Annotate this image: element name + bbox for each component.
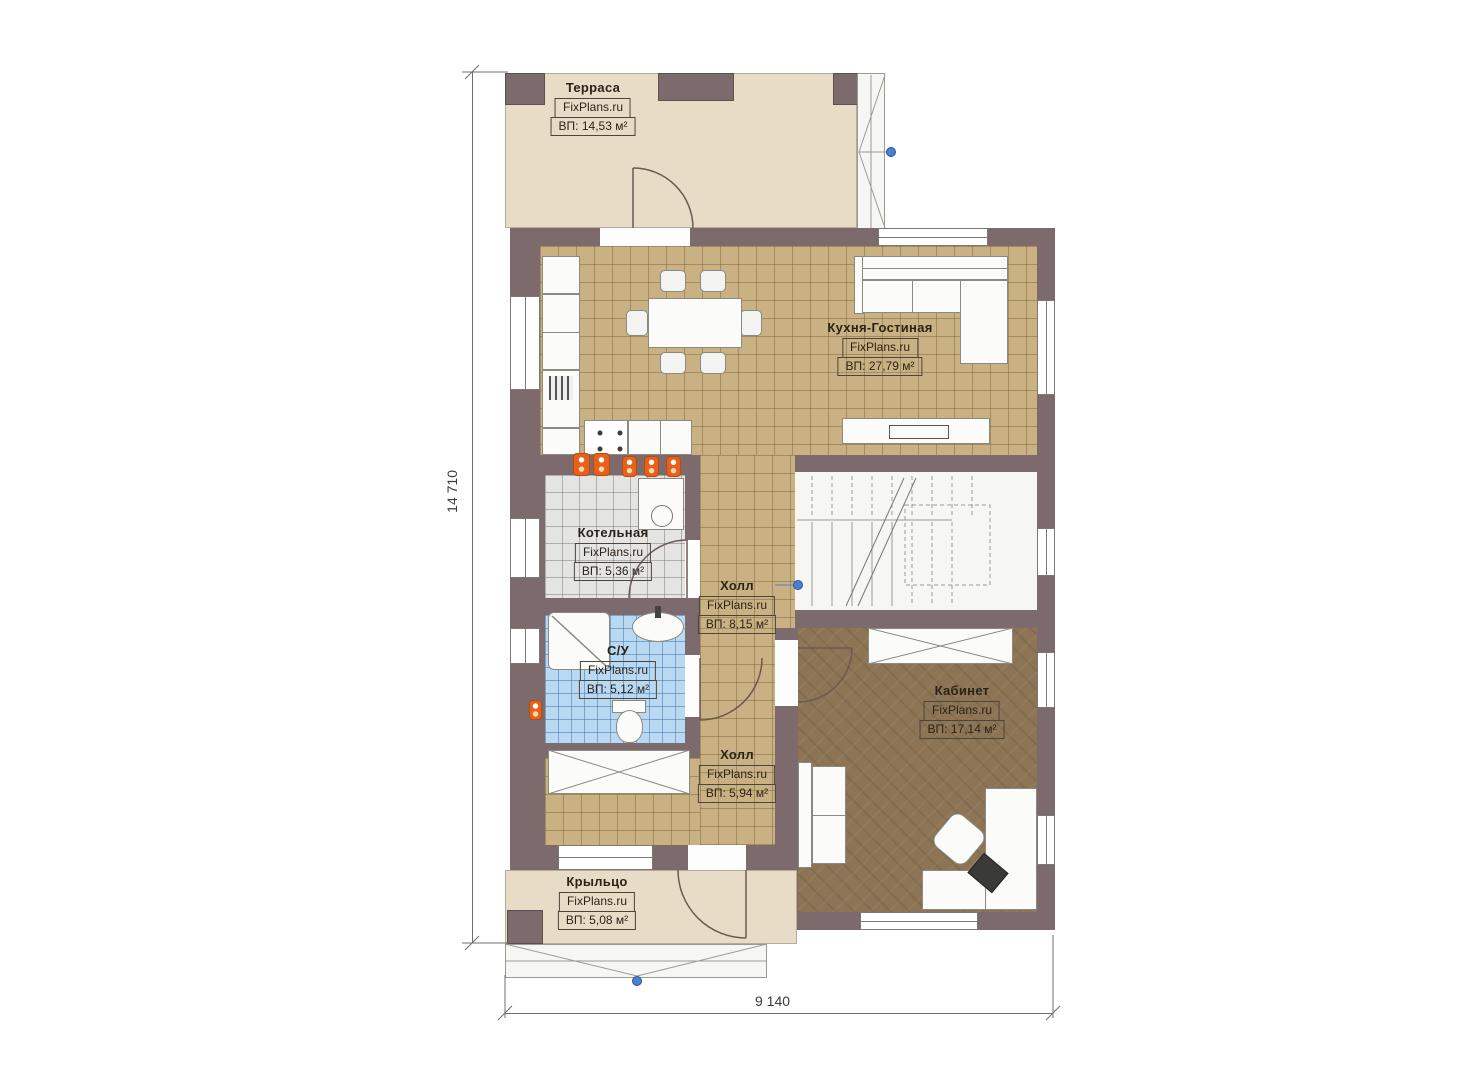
room-area: ВП: 5,94 м² [698,784,776,804]
brand-watermark: FixPlans.ru [924,701,1000,721]
room-label-hall-upper: Холл FixPlans.ru ВП: 8,15 м² [698,578,776,634]
terrace-steps [857,73,885,230]
porch-column [507,910,543,944]
window [510,628,540,664]
window [1037,300,1055,395]
wardrobe [868,628,1013,664]
staircase-area [795,472,1037,610]
tv-stand [842,418,990,444]
chair [660,270,686,292]
boiler-unit [638,478,684,530]
window [558,845,653,870]
terrace-column [658,73,734,101]
terrace-door-opening [600,228,690,246]
room-name: Холл [720,578,754,593]
bathroom-door-opening [685,655,700,717]
brand-watermark: FixPlans.ru [555,98,631,118]
room-area: ВП: 8,15 м² [698,615,776,635]
radiator [529,700,542,720]
room-name: Кабинет [935,683,990,698]
brand-watermark: FixPlans.ru [699,765,775,785]
dimension-line-vertical [472,72,473,943]
kitchen-sink-unit [542,256,580,294]
dimension-line-horizontal [505,1013,1053,1014]
radiator [644,456,659,477]
room-area: ВП: 17,14 м² [920,720,1005,740]
porch-steps [505,944,767,978]
toilet-bowl [616,710,643,743]
chair [700,352,726,374]
appliance-grill [549,376,573,400]
washbasin-tap [655,606,661,618]
sofa-seats [862,280,962,313]
room-area: ВП: 27,79 м² [838,357,923,377]
window [510,296,540,390]
kitchen-appliance [542,370,580,428]
tv [889,425,949,439]
room-area: ВП: 5,12 м² [579,680,657,700]
room-name: Терраса [566,80,620,95]
sofa-back [862,256,1008,280]
office-sofa-back [798,762,812,868]
radiator [666,456,681,477]
window [1037,652,1055,708]
office-sofa-seats [812,766,846,864]
kitchen-counter-bottom [628,420,692,455]
window [510,518,540,578]
window [1037,528,1055,576]
room-name: Крыльцо [566,874,627,889]
office-door-opening [775,640,798,706]
room-label-porch: Крыльцо FixPlans.ru ВП: 5,08 м² [558,874,636,930]
terrace-column [505,73,545,105]
terrace-column [833,73,859,105]
room-label-bathroom: С/У FixPlans.ru ВП: 5,12 м² [579,643,657,699]
room-label-kitchen-living: Кухня-Гостиная FixPlans.ru ВП: 27,79 м² [827,320,932,376]
brand-watermark: FixPlans.ru [699,596,775,616]
wardrobe [548,750,690,794]
dimension-height-label: 14 710 [444,470,460,513]
brand-watermark: FixPlans.ru [580,661,656,681]
porch-floor [505,870,797,944]
radiator [593,453,610,476]
chair [740,310,762,336]
sofa-chaise [960,280,1008,364]
hall-upper-floor-south [700,628,775,845]
dining-table [648,298,742,348]
room-name: Кухня-Гостиная [827,320,932,335]
brand-watermark: FixPlans.ru [575,543,651,563]
radiator [622,456,637,477]
room-label-terrace: Терраса FixPlans.ru ВП: 14,53 м² [551,80,636,136]
room-label-boiler-room: Котельная FixPlans.ru ВП: 5,36 м² [574,525,652,581]
window [1037,815,1055,865]
boiler-dial [651,505,673,527]
window [860,912,978,930]
dimension-width-label: 9 140 [755,993,790,1009]
entrance-door-opening [688,845,746,870]
kitchen-base-cabinet [542,428,580,455]
brand-watermark: FixPlans.ru [559,892,635,912]
room-area: ВП: 5,36 м² [574,562,652,582]
radiator [573,453,590,476]
room-name: Котельная [578,525,649,540]
chair [700,270,726,292]
kitchen-counter [542,294,580,370]
floor-plan-canvas: Терраса FixPlans.ru ВП: 14,53 м² Кухня-Г… [0,0,1474,1080]
stove [584,420,628,455]
room-name: С/У [607,643,629,658]
chair [626,310,648,336]
room-name: Холл [720,747,754,762]
room-label-hall-lower: Холл FixPlans.ru ВП: 5,94 м² [698,747,776,803]
room-area: ВП: 5,08 м² [558,911,636,931]
brand-watermark: FixPlans.ru [842,338,918,358]
window [878,228,988,246]
room-area: ВП: 14,53 м² [551,117,636,137]
chair [660,352,686,374]
room-label-office: Кабинет FixPlans.ru ВП: 17,14 м² [920,683,1005,739]
